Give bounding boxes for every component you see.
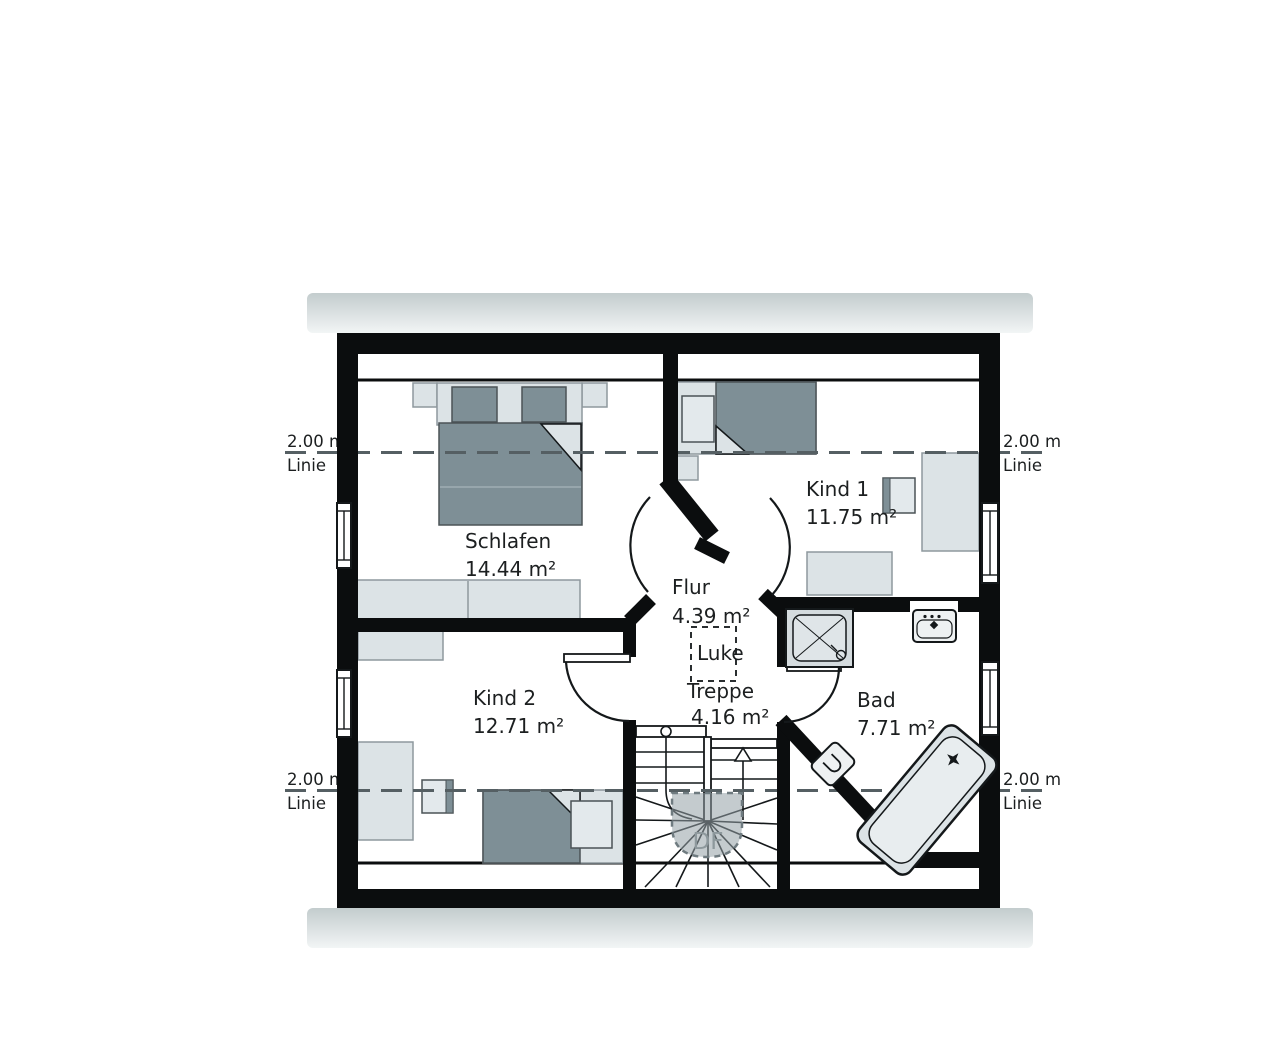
wall-stair-bad xyxy=(777,722,790,889)
room-area-bad: 7.71 m² xyxy=(857,716,935,740)
pillow xyxy=(682,396,714,442)
outer-wall-left xyxy=(337,333,358,908)
height-label-top-left: Linie xyxy=(287,456,326,475)
height-value-bottom-left: 2.00 m xyxy=(287,770,345,789)
room-label-kind1: Kind 1 xyxy=(806,477,869,501)
nightstand-right xyxy=(582,383,607,407)
nightstand-left xyxy=(413,383,437,407)
shower xyxy=(786,609,853,667)
wall-schlafen-kind1 xyxy=(663,354,678,485)
sink xyxy=(913,610,956,642)
room-label-kind2: Kind 2 xyxy=(473,686,536,710)
wall-kind2-stair xyxy=(623,720,636,889)
height-value-bottom-right: 2.00 m xyxy=(1003,770,1061,789)
window-left-1 xyxy=(337,503,351,568)
room-area-schlafen: 14.44 m² xyxy=(465,557,556,581)
pillow-left xyxy=(452,387,497,422)
hatch-label: Luke xyxy=(697,641,744,665)
room-label-treppe: Treppe xyxy=(686,679,754,703)
floor-plan-canvas: DF 2.00 m Linie 2.00 m Linie 2.00 m Lini… xyxy=(0,0,1280,1058)
height-value-top-left: 2.00 m xyxy=(287,432,345,451)
height-label-bottom-right: Linie xyxy=(1003,794,1042,813)
height-label-bottom-left: Linie xyxy=(287,794,326,813)
room-area-flur: 4.39 m² xyxy=(672,604,750,628)
window-right-2 xyxy=(982,662,998,735)
outer-wall-bottom xyxy=(337,889,1000,908)
bottom-eave xyxy=(307,908,1033,948)
walking-line-start xyxy=(661,727,671,737)
window-right-1 xyxy=(982,503,998,583)
desk xyxy=(922,453,979,551)
room-label-bad: Bad xyxy=(857,688,896,712)
outer-wall-top xyxy=(337,333,1000,354)
door-leaf-kind2 xyxy=(564,654,630,662)
room-label-flur: Flur xyxy=(672,575,711,599)
floor-plan-drawing: DF 2.00 m Linie 2.00 m Linie 2.00 m Lini… xyxy=(0,0,1280,1058)
wall-schlafen-kind2 xyxy=(358,618,636,632)
room-area-kind1: 11.75 m² xyxy=(806,505,897,529)
pillow-right xyxy=(522,387,566,422)
outer-wall-right xyxy=(979,333,1000,908)
room-area-kind2: 12.71 m² xyxy=(473,714,564,738)
window-left-2 xyxy=(337,670,351,737)
height-value-top-right: 2.00 m xyxy=(1003,432,1061,451)
handrail-right xyxy=(711,739,777,748)
top-eave xyxy=(307,293,1033,333)
chair-back xyxy=(446,780,453,813)
pillow xyxy=(571,801,612,848)
dresser xyxy=(807,552,892,595)
height-label-top-right: Linie xyxy=(1003,456,1042,475)
roof-window-label: DF xyxy=(693,829,724,855)
room-area-treppe: 4.16 m² xyxy=(691,705,769,729)
wall-kind2-flur-upper xyxy=(623,618,636,657)
room-label-schlafen: Schlafen xyxy=(465,529,551,553)
